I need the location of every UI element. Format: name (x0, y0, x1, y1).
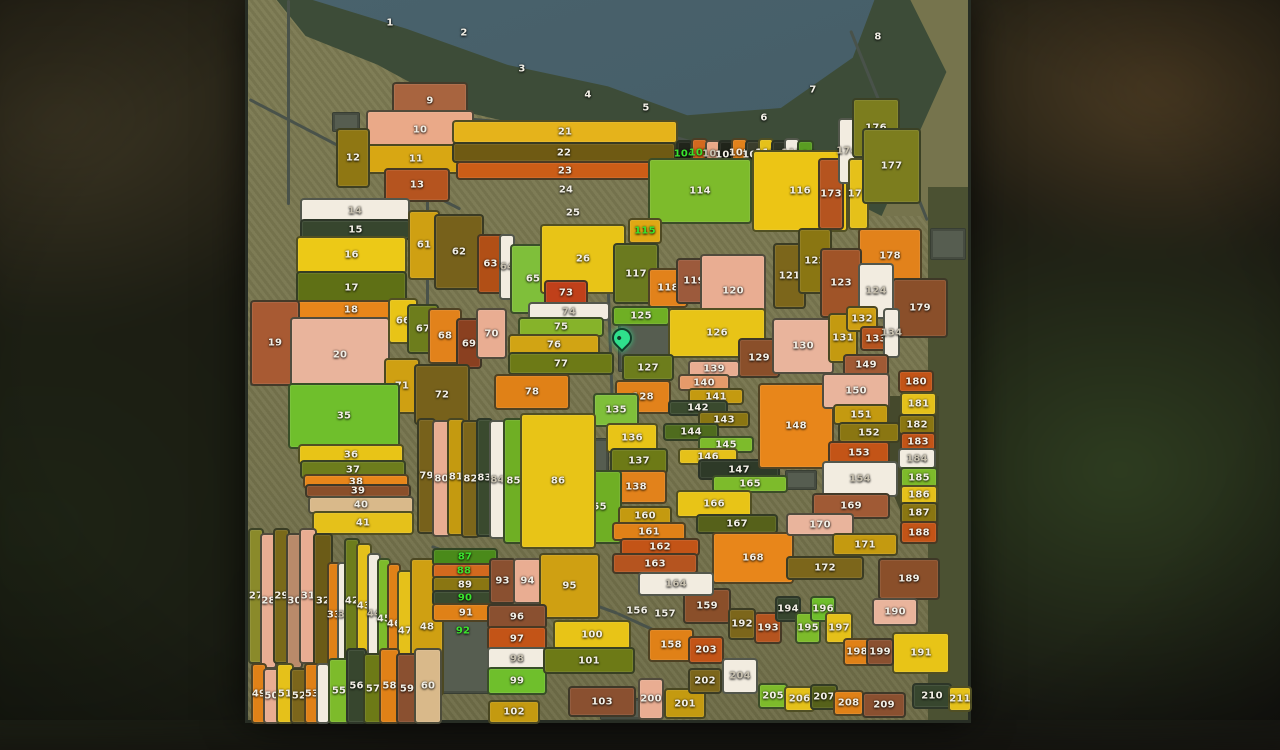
field-number: 211 (949, 694, 970, 705)
field-number: 12 (346, 153, 360, 164)
field-number: 178 (879, 251, 900, 262)
field-21[interactable]: 21 (452, 120, 678, 144)
field-24[interactable]: 24 (553, 181, 579, 199)
field-number: 170 (809, 519, 830, 530)
field-number: 85 (506, 476, 520, 487)
field-number: 158 (660, 640, 681, 651)
field-number: 48 (420, 622, 434, 633)
field-number: 177 (881, 161, 902, 172)
field-114[interactable]: 114 (648, 158, 752, 224)
field-5[interactable]: 5 (634, 99, 658, 117)
field-number: 132 (851, 314, 872, 325)
field-number: 180 (905, 376, 926, 387)
field-199[interactable]: 199 (866, 638, 894, 666)
field-number: 1 (386, 18, 393, 29)
field-number: 2 (460, 28, 467, 39)
field-number: 168 (742, 553, 763, 564)
field-209[interactable]: 209 (862, 692, 906, 718)
field-number: 87 (458, 552, 472, 563)
field-number: 73 (559, 288, 573, 299)
field-number: 206 (789, 694, 810, 705)
field-130[interactable]: 130 (772, 318, 834, 374)
field-number: 35 (337, 411, 351, 422)
field-number: 193 (757, 623, 778, 634)
field-number: 152 (858, 427, 879, 438)
field-number: 135 (605, 405, 626, 416)
field-number: 98 (510, 654, 524, 665)
field-number: 92 (456, 626, 470, 637)
field-number: 163 (644, 558, 665, 569)
field-number: 6 (760, 113, 767, 124)
field-125[interactable]: 125 (612, 306, 670, 326)
field-number: 40 (354, 500, 368, 511)
field-25[interactable]: 25 (560, 204, 586, 222)
field-95[interactable]: 95 (539, 553, 600, 619)
field-number: 166 (703, 499, 724, 510)
field-92[interactable]: 92 (450, 622, 476, 640)
field-number: 190 (884, 607, 905, 618)
field-number: 75 (554, 322, 568, 333)
field-7[interactable]: 7 (801, 81, 825, 99)
field-12[interactable]: 12 (336, 128, 370, 188)
field-number: 57 (366, 683, 380, 694)
field-number: 8 (874, 32, 881, 43)
field-number: 160 (634, 511, 655, 522)
field-number: 60 (421, 681, 435, 692)
field-number: 140 (693, 377, 714, 388)
field-number: 137 (628, 456, 649, 467)
field-172[interactable]: 172 (786, 556, 864, 580)
field-177[interactable]: 177 (862, 128, 921, 204)
field-number: 197 (828, 623, 849, 634)
field-number: 96 (510, 611, 524, 622)
field-number: 39 (351, 486, 365, 497)
field-number: 65 (526, 274, 540, 285)
field-number: 14 (348, 206, 362, 217)
field-number: 99 (510, 676, 524, 687)
field-2[interactable]: 2 (452, 24, 476, 42)
field-number: 124 (865, 286, 886, 297)
field-number: 100 (581, 630, 602, 641)
field-number: 21 (558, 127, 572, 138)
field-number: 172 (814, 563, 835, 574)
field-number: 150 (845, 386, 866, 397)
field-100[interactable]: 100 (553, 620, 631, 650)
field-171[interactable]: 171 (832, 533, 898, 556)
field-number: 187 (908, 508, 929, 519)
field-number: 208 (838, 698, 859, 709)
field-number: 101 (578, 655, 599, 666)
field-number: 188 (908, 527, 929, 538)
field-115[interactable]: 115 (628, 218, 662, 244)
field-number: 9 (426, 96, 433, 107)
field-number: 148 (785, 421, 806, 432)
field-number: 95 (562, 581, 576, 592)
field-number: 59 (400, 683, 414, 694)
field-number: 11 (409, 154, 423, 165)
field-number: 68 (438, 331, 452, 342)
field-number: 115 (634, 226, 655, 237)
field-number: 192 (731, 619, 752, 630)
field-number: 189 (898, 574, 919, 585)
field-188[interactable]: 188 (900, 521, 938, 544)
field-78[interactable]: 78 (494, 374, 570, 410)
field-16[interactable]: 16 (296, 236, 407, 274)
field-number: 171 (854, 539, 875, 550)
field-number: 191 (910, 648, 931, 659)
field-210[interactable]: 210 (912, 683, 952, 709)
field-163[interactable]: 163 (612, 553, 698, 574)
field-number: 161 (638, 526, 659, 537)
field-number: 56 (349, 681, 363, 692)
field-number: 23 (558, 165, 572, 176)
field-number: 24 (559, 185, 573, 196)
field-number: 20 (333, 350, 347, 361)
field-number: 201 (674, 698, 695, 709)
field-number: 149 (855, 360, 876, 371)
field-41[interactable]: 41 (312, 511, 414, 535)
field-179[interactable]: 179 (892, 278, 948, 338)
field-number: 25 (566, 208, 580, 219)
field-number: 74 (562, 306, 576, 317)
field-number: 55 (332, 686, 346, 697)
field-number: 125 (630, 311, 651, 322)
field-number: 41 (356, 518, 370, 529)
field-number: 93 (495, 576, 509, 587)
field-number: 90 (458, 593, 472, 604)
field-number: 173 (820, 189, 841, 200)
field-23[interactable]: 23 (456, 161, 674, 180)
field-number: 72 (435, 389, 449, 400)
field-number: 116 (789, 186, 810, 197)
field-number: 183 (907, 436, 928, 447)
field-number: 156 (626, 606, 647, 617)
field-number: 62 (452, 247, 466, 258)
field-60[interactable]: 60 (414, 648, 442, 724)
field-number: 138 (625, 482, 646, 493)
field-190[interactable]: 190 (872, 598, 918, 626)
field-number: 102 (503, 707, 524, 718)
field-200[interactable]: 200 (638, 678, 664, 720)
field-number: 154 (849, 474, 870, 485)
field-211[interactable]: 211 (948, 686, 972, 712)
field-number: 15 (348, 224, 362, 235)
field-number: 157 (654, 609, 675, 620)
field-94[interactable]: 94 (513, 558, 542, 604)
field-number: 210 (921, 691, 942, 702)
field-number: 88 (457, 566, 471, 577)
field-number: 16 (344, 250, 358, 261)
field-number: 153 (848, 447, 869, 458)
field-number: 165 (739, 479, 760, 490)
field-number: 70 (484, 328, 498, 339)
field-number: 130 (792, 341, 813, 352)
field-number: 167 (726, 519, 747, 530)
field-number: 200 (640, 694, 661, 705)
field-number: 134 (881, 328, 902, 339)
field-152[interactable]: 152 (838, 422, 900, 443)
field-184[interactable]: 184 (898, 448, 936, 469)
field-number: 147 (728, 464, 749, 475)
field-22[interactable]: 22 (452, 142, 676, 163)
field-35[interactable]: 35 (288, 383, 400, 449)
field-number: 63 (483, 259, 497, 270)
field-number: 159 (696, 601, 717, 612)
field-number: 114 (689, 186, 710, 197)
fields-layer: 1234567891011121321222324251041051061071… (0, 0, 1280, 720)
field-number: 126 (706, 328, 727, 339)
field-154[interactable]: 154 (822, 461, 898, 497)
field-135[interactable]: 135 (593, 393, 639, 427)
field-86[interactable]: 86 (520, 413, 596, 549)
field-number: 198 (846, 647, 867, 658)
field-number: 139 (703, 364, 724, 375)
field-number: 77 (554, 358, 568, 369)
field-164[interactable]: 164 (638, 572, 714, 596)
field-number: 91 (459, 607, 473, 618)
field-number: 182 (906, 419, 927, 430)
field-number: 69 (462, 338, 476, 349)
field-156[interactable]: 156 (622, 602, 652, 620)
field-99[interactable]: 99 (487, 667, 547, 695)
field-number: 164 (665, 579, 686, 590)
field-number: 181 (908, 399, 929, 410)
field-number: 169 (840, 501, 861, 512)
field-number: 179 (909, 303, 930, 314)
field-number: 97 (510, 633, 524, 644)
field-number: 103 (591, 696, 612, 707)
field-number: 162 (649, 542, 670, 553)
field-number: 76 (547, 340, 561, 351)
field-13[interactable]: 13 (384, 168, 450, 202)
field-167[interactable]: 167 (696, 514, 778, 534)
field-8[interactable]: 8 (866, 28, 890, 46)
field-number: 186 (908, 490, 929, 501)
field-157[interactable]: 157 (650, 605, 680, 623)
field-number: 4 (584, 90, 591, 101)
field-number: 5 (642, 103, 649, 114)
field-number: 120 (722, 286, 743, 297)
field-number: 136 (621, 433, 642, 444)
field-103[interactable]: 103 (568, 686, 636, 717)
field-3[interactable]: 3 (510, 60, 534, 78)
field-93[interactable]: 93 (489, 558, 516, 604)
field-102[interactable]: 102 (488, 700, 540, 724)
field-number: 26 (576, 254, 590, 265)
field-number: 209 (873, 700, 894, 711)
field-72[interactable]: 72 (414, 364, 470, 425)
field-number: 203 (695, 645, 716, 656)
field-number: 205 (762, 691, 783, 702)
field-number: 19 (268, 338, 282, 349)
field-number: 129 (748, 353, 769, 364)
field-number: 123 (830, 278, 851, 289)
field-208[interactable]: 208 (833, 690, 864, 716)
field-number: 18 (344, 305, 358, 316)
field-number: 131 (832, 333, 853, 344)
field-number: 185 (908, 472, 929, 483)
field-202[interactable]: 202 (688, 668, 722, 694)
field-number: 207 (813, 692, 834, 703)
field-192[interactable]: 192 (728, 608, 756, 640)
field-number: 144 (680, 427, 701, 438)
field-number: 195 (797, 623, 818, 634)
field-number: 117 (625, 268, 646, 279)
field-number: 127 (637, 362, 658, 373)
field-number: 184 (906, 453, 927, 464)
field-180[interactable]: 180 (898, 370, 934, 393)
field-191[interactable]: 191 (892, 632, 950, 674)
field-127[interactable]: 127 (622, 354, 674, 381)
field-6[interactable]: 6 (752, 109, 776, 127)
field-number: 89 (458, 580, 472, 591)
field-number: 17 (344, 282, 358, 293)
field-number: 204 (729, 671, 750, 682)
field-number: 7 (809, 85, 816, 96)
field-number: 202 (694, 676, 715, 687)
field-number: 3 (518, 64, 525, 75)
field-101[interactable]: 101 (543, 647, 635, 674)
field-189[interactable]: 189 (878, 558, 940, 600)
field-number: 36 (344, 449, 358, 460)
field-number: 94 (520, 576, 534, 587)
field-168[interactable]: 168 (712, 532, 794, 584)
field-number: 151 (850, 409, 871, 420)
field-134[interactable]: 134 (883, 308, 900, 358)
field-number: 78 (525, 387, 539, 398)
field-number: 13 (410, 180, 424, 191)
field-20[interactable]: 20 (290, 317, 390, 393)
field-204[interactable]: 204 (722, 658, 758, 694)
field-77[interactable]: 77 (508, 352, 614, 375)
field-203[interactable]: 203 (688, 636, 724, 664)
field-1[interactable]: 1 (378, 14, 402, 32)
field-number: 58 (382, 681, 396, 692)
field-number: 10 (413, 125, 427, 136)
field-number: 61 (417, 240, 431, 251)
field-number: 199 (869, 647, 890, 658)
field-4[interactable]: 4 (576, 86, 600, 104)
field-181[interactable]: 181 (900, 392, 937, 416)
field-number: 86 (551, 476, 565, 487)
field-70[interactable]: 70 (476, 308, 507, 359)
field-number: 22 (557, 147, 571, 158)
